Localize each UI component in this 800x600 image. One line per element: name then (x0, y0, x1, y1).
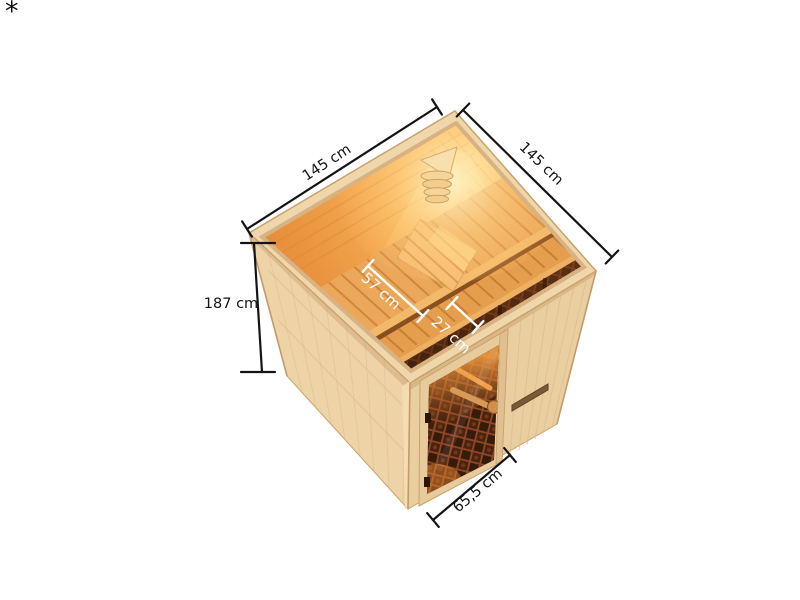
dimension-label-wall-height: 187 cm (204, 296, 258, 312)
footnote-asterisk: * (5, 0, 19, 27)
door-hinge-top (425, 413, 431, 423)
sauna-cabin (249, 82, 596, 509)
door-hinge-bottom (424, 477, 430, 487)
sauna-illustration: 145 cm 145 cm 187 cm 57 cm (0, 0, 800, 600)
dimension-label-outer-width-right: 145 cm (516, 139, 566, 188)
product-diagram-canvas: * (0, 0, 800, 600)
